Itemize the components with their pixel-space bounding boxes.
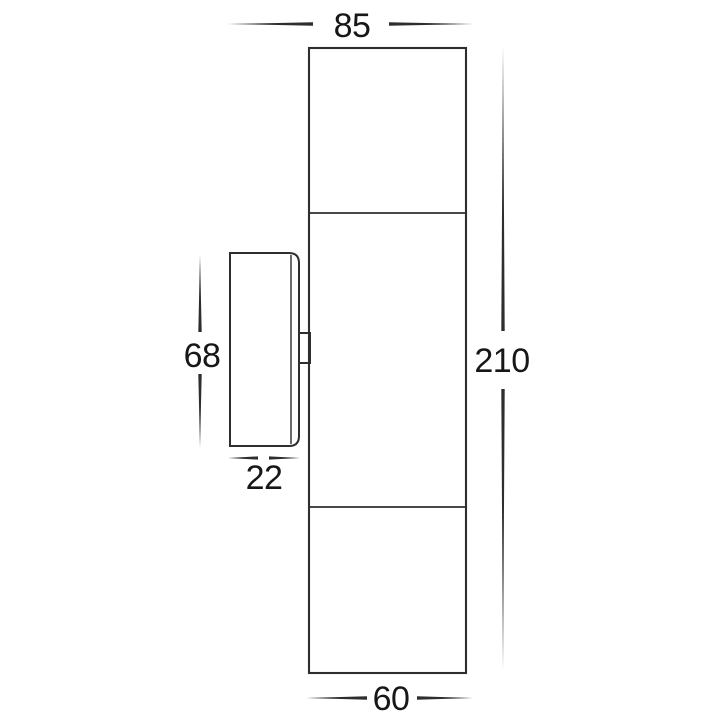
dim-top-arrow-right	[389, 22, 473, 25]
fixture-body-outline	[309, 48, 466, 673]
dimension-arrows-group	[198, 22, 504, 699]
dim-top-label: 85	[334, 7, 371, 45]
dimension-labels-group: 85 210 68 22 60	[184, 7, 530, 718]
dim-bottom-label: 60	[373, 680, 410, 718]
mounting-bracket-outline	[230, 253, 299, 446]
fixture-outline-group	[230, 48, 466, 673]
dim-bracket-height-label: 68	[184, 337, 221, 375]
dim-right-arrow-top	[501, 46, 504, 331]
dim-bottom-arrow-left	[306, 696, 367, 699]
technical-drawing-page: 85 210 68 22 60	[0, 0, 720, 720]
dim-bracket-height-arrow-bottom	[198, 374, 201, 448]
dimension-diagram-svg: 85 210 68 22 60	[0, 0, 720, 720]
dim-top-arrow-left	[227, 22, 313, 25]
dim-right-label: 210	[474, 342, 529, 380]
dim-bracket-height-arrow-top	[198, 255, 201, 332]
dim-bracket-depth-label: 22	[246, 459, 283, 497]
dim-right-arrow-bottom	[501, 389, 504, 671]
dim-bottom-arrow-right	[417, 696, 473, 699]
